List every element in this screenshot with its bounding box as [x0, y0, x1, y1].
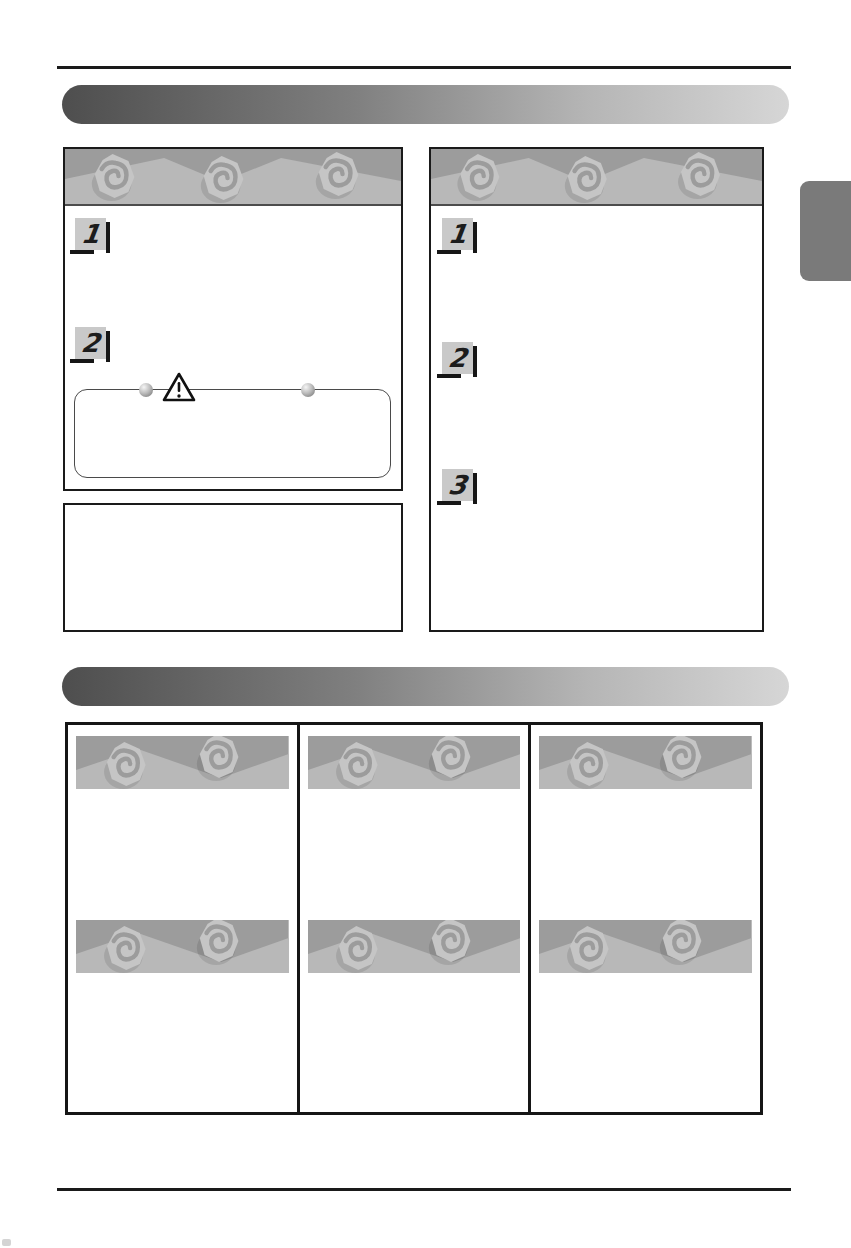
step-badge-3: 3	[442, 469, 473, 501]
swirl-band-icon	[539, 920, 752, 973]
swirl-band-icon	[308, 736, 521, 789]
bottom-rule	[57, 1188, 791, 1191]
instruction-panel-right: 1 2 3	[429, 147, 764, 632]
grid-column-1	[68, 725, 300, 1112]
grid-column-2	[300, 725, 532, 1112]
step-badge-2: 2	[75, 327, 106, 359]
sphere-pin-icon	[139, 383, 153, 397]
panel-header-ornament	[431, 149, 762, 206]
section-banner-bottom	[62, 667, 789, 706]
step-badge-2: 2	[442, 342, 473, 374]
step-number: 2	[440, 342, 475, 374]
step-number: 1	[73, 218, 108, 250]
instruction-panel-left: 1 2	[63, 147, 403, 491]
swirl-band-icon	[65, 149, 401, 204]
step-number: 3	[440, 469, 475, 501]
step-number: 1	[440, 218, 475, 250]
note-box	[63, 503, 403, 632]
swirl-band-icon	[308, 920, 521, 973]
page-index-tab	[800, 181, 851, 281]
step-badge-1: 1	[442, 218, 473, 250]
top-rule	[57, 66, 791, 69]
grid-column-3	[531, 725, 760, 1112]
manual-page: 1 2 1 2 3	[0, 0, 851, 1248]
swirl-band-icon	[431, 149, 762, 204]
section-banner-top	[62, 85, 789, 124]
warning-triangle-icon	[161, 371, 197, 403]
step-badge-1: 1	[75, 218, 106, 250]
scan-corner-artifact	[2, 1239, 11, 1246]
swirl-band-icon	[539, 736, 752, 789]
caution-callout	[74, 389, 391, 478]
panel-header-ornament	[65, 149, 401, 206]
sphere-pin-icon	[301, 383, 315, 397]
info-grid	[65, 722, 763, 1115]
step-number: 2	[73, 327, 108, 359]
swirl-band-icon	[76, 736, 289, 789]
swirl-band-icon	[76, 920, 289, 973]
